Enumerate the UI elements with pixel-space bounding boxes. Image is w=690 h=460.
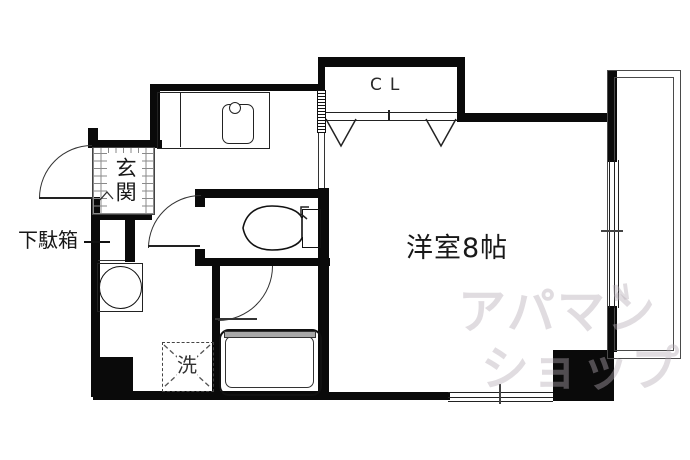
- wall-north-east: [457, 113, 612, 122]
- shoe-cabinet-pointer-line: [84, 241, 110, 243]
- bath-door-leaf: [215, 318, 257, 320]
- wall-closet-left: [318, 57, 325, 91]
- watermark-line2: ショップ: [481, 345, 681, 393]
- sliding-door: [317, 90, 326, 133]
- watermark-accent: N: [611, 282, 634, 307]
- entrance-label: 玄関: [113, 157, 136, 205]
- bath-door-arc-icon: [218, 266, 273, 321]
- wall-closet-top: [318, 57, 465, 67]
- round-fixture-icon: [99, 266, 142, 309]
- floor-plan: 玄関 下駄箱 洗 CL 洋室8帖 アパマン N ショップ: [0, 0, 690, 460]
- closet-fold-door-icon: [426, 119, 456, 146]
- toilet-bowl-icon: [243, 206, 302, 250]
- toilet-door-leaf: [148, 245, 200, 247]
- kitchen-counter-divider: [180, 92, 181, 147]
- bathtub-rim: [224, 331, 316, 338]
- wall-kitchen-top: [150, 84, 325, 91]
- wall-toilet-bottom: [195, 258, 330, 266]
- toilet-tank-notch: [300, 218, 304, 237]
- wall-bottom-main: [322, 392, 450, 400]
- kitchen-faucet-icon: [229, 102, 241, 114]
- closet-label: CL: [370, 76, 407, 95]
- wall-shoebox-right: [125, 216, 135, 262]
- entry-door-leaf: [39, 197, 92, 199]
- wall-toilet-top: [195, 189, 325, 198]
- wall-closet-right: [457, 57, 465, 120]
- shoe-cabinet-bottom-line: [98, 260, 125, 261]
- toilet-tank: [302, 209, 321, 248]
- entry-door-arc-icon: [39, 145, 92, 198]
- bathtub-inner: [225, 336, 314, 388]
- closet-rail: [325, 112, 457, 121]
- closet-rail-tick: [388, 110, 390, 120]
- closet-fold-door-icon: [326, 119, 356, 146]
- window-east-tick: [601, 230, 623, 232]
- toilet-door-arc-icon: [148, 195, 201, 248]
- washer-label: 洗: [177, 354, 197, 376]
- main-room-label: 洋室8帖: [406, 234, 508, 264]
- sliding-door-track: [318, 133, 325, 188]
- shoe-cabinet-label: 下駄箱: [18, 229, 78, 251]
